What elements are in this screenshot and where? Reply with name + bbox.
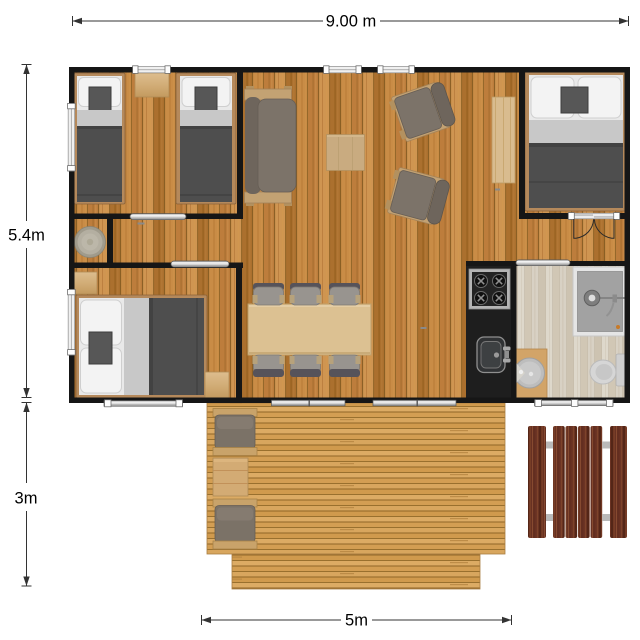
svg-text:5m: 5m xyxy=(345,612,368,630)
svg-text:5.4m: 5.4m xyxy=(8,227,45,245)
svg-text:3m: 3m xyxy=(15,490,38,508)
svg-text:9.00 m: 9.00 m xyxy=(326,13,376,31)
